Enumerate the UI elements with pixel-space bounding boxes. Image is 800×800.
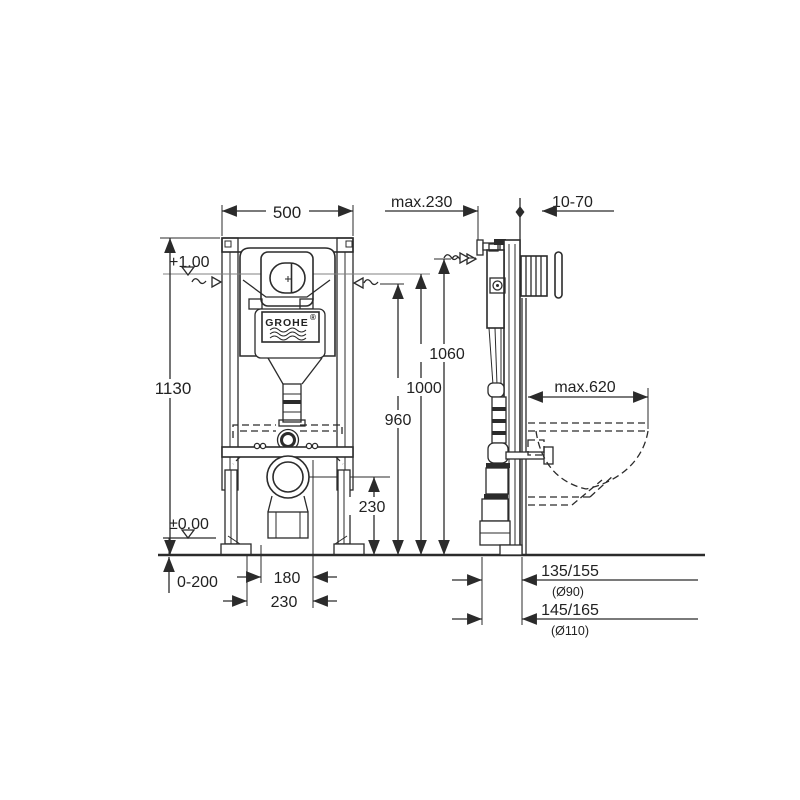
installation-frame-drawing: GROHE ® bbox=[0, 0, 800, 800]
dim-bowl-projection: max.620 bbox=[554, 379, 615, 396]
dim-frame-depth: max.230 bbox=[391, 194, 452, 211]
dim-outlet-90: 135/155 bbox=[541, 563, 599, 580]
registered-mark: ® bbox=[310, 313, 316, 322]
dim-finish-thickness: 10-70 bbox=[552, 194, 593, 211]
dim-foot-adjustment: 0-200 bbox=[177, 574, 218, 591]
grohe-logo: GROHE bbox=[265, 317, 309, 329]
drawing-background bbox=[0, 0, 800, 800]
dim-level-1000: 1000 bbox=[406, 380, 442, 397]
flush-plate-side bbox=[555, 252, 562, 298]
dim-frame-height: 1130 bbox=[155, 379, 192, 398]
outlet-socket bbox=[268, 512, 308, 538]
dim-fixing-outer: 230 bbox=[271, 594, 298, 611]
dim-outlet-90-diameter: (Ø90) bbox=[552, 585, 584, 599]
dim-outlet-110: 145/165 bbox=[541, 602, 599, 619]
dim-frame-width: 500 bbox=[273, 203, 301, 222]
technical-drawing-canvas: GROHE ® bbox=[0, 0, 800, 800]
dim-fixing-inner: 180 bbox=[274, 570, 301, 587]
dim-outlet-110-diameter: (Ø110) bbox=[551, 624, 589, 638]
dim-level-960: 960 bbox=[385, 412, 412, 429]
actuator-cylinder bbox=[521, 256, 547, 296]
dim-outlet-height: 230 bbox=[359, 499, 386, 516]
dim-level-1060: 1060 bbox=[429, 346, 465, 363]
